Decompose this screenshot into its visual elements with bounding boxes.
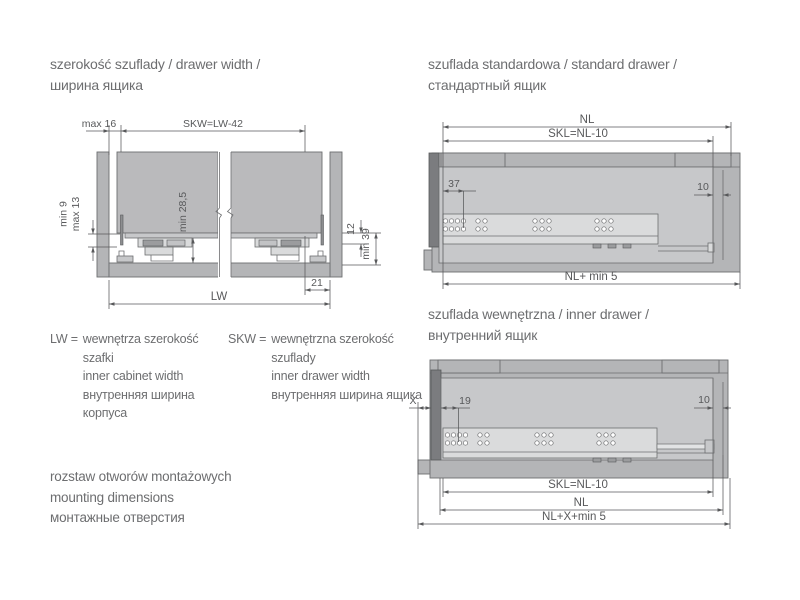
legend-lw-line: szafki <box>83 349 199 368</box>
dim-label-12: 12 <box>345 223 357 235</box>
drawer-width-diagram: max 16 SKW=LW-42 min 9 max 13 min 28,5 1… <box>55 108 400 320</box>
drawer-width-title: szerokość szuflady / drawer width / шири… <box>50 54 260 96</box>
top-notch-right <box>662 360 719 373</box>
inner-drawer-diagram: X 19 10 SKL=NL-10 NL NL+X+min 5 <box>408 352 773 537</box>
cabinet-bottom-section <box>418 460 431 474</box>
dim-label-max13: max 13 <box>70 197 82 232</box>
legend-skw-line: inner drawer width <box>271 367 422 386</box>
dim-label-nl-min5: NL+ min 5 <box>565 271 618 283</box>
dim-label-skl: SKL=NL-10 <box>548 479 608 491</box>
mounting-note-line2: mounting dimensions <box>50 488 231 509</box>
drawer-body-right <box>230 152 322 233</box>
dim-label-min39: min 39 <box>360 228 372 260</box>
dim-label-min285: min 28,5 <box>177 192 189 232</box>
dim-label-skw: SKW=LW-42 <box>183 118 243 130</box>
dim-label-max16: max 16 <box>82 118 117 130</box>
legend-lw-line: корпуса <box>83 404 199 423</box>
drawer-side-clip-right <box>321 215 324 245</box>
legend-skw-line: внутренняя ширина ящика <box>271 386 422 405</box>
slide-mechanism-left <box>117 238 192 262</box>
dim-label-37: 37 <box>448 178 460 190</box>
legend-lw-term: LW = <box>50 330 78 423</box>
break-gap <box>218 148 231 281</box>
technical-sheet: szerokość szuflady / drawer width / шири… <box>0 0 800 600</box>
standard-drawer-title: szuflada standardowa / standard drawer /… <box>428 54 677 96</box>
top-notch-right <box>675 153 731 167</box>
cabinet-front-edge <box>431 370 441 460</box>
dim-label-lw: LW <box>211 291 228 303</box>
mounting-note: rozstaw otworów montażowych mounting dim… <box>50 467 231 529</box>
legend-skw-term: SKW = <box>228 330 266 404</box>
cabinet-back-panel <box>429 153 439 247</box>
standard-drawer-title-line2: стандартный ящик <box>428 75 677 96</box>
dim-label-nl-x-min5: NL+X+min 5 <box>542 511 606 523</box>
standard-drawer-title-line1: szuflada standardowa / standard drawer / <box>428 54 677 75</box>
drawer-bottom-left <box>125 233 218 238</box>
legend-skw-lines: wewnętrzna szerokość szuflady inner draw… <box>271 330 422 404</box>
dim-label-19: 19 <box>459 395 471 407</box>
legend-lw-line: wewnętrza szerokość <box>83 330 199 349</box>
drawer-width-title-line2: ширина ящика <box>50 75 260 96</box>
legend-lw-lines: wewnętrza szerokość szafki inner cabinet… <box>83 330 199 423</box>
slide-mechanism-right <box>255 238 326 262</box>
legend-lw-line: внутренняя ширина <box>83 386 199 405</box>
inner-drawer-title-line2: внутренний ящик <box>428 325 649 346</box>
inner-drawer-title: szuflada wewnętrzna / inner drawer / вну… <box>428 304 649 346</box>
drawer-bottom-right <box>230 233 317 238</box>
drawer-width-title-line1: szerokość szuflady / drawer width / <box>50 54 260 75</box>
top-notch-left <box>441 153 505 167</box>
legend-skw-line: wewnętrzna szerokość <box>271 330 422 349</box>
inner-drawer-title-line1: szuflada wewnętrzna / inner drawer / <box>428 304 649 325</box>
cabinet-right-side-panel <box>330 152 342 277</box>
mounting-note-line3: монтажные отверстия <box>50 508 231 529</box>
dim-label-10: 10 <box>698 394 710 406</box>
drawer-side-clip-left <box>121 215 124 245</box>
legend-lw-line: inner cabinet width <box>83 367 199 386</box>
drawer-body-left <box>117 152 218 233</box>
dim-label-10: 10 <box>697 181 709 193</box>
dim-label-min9: min 9 <box>58 201 70 227</box>
legend-skw: SKW = wewnętrzna szerokość szuflady inne… <box>228 330 422 404</box>
legend-lw: LW = wewnętrza szerokość szafki inner ca… <box>50 330 199 423</box>
top-notch-left <box>438 360 500 373</box>
rail-tabs <box>593 458 631 462</box>
cabinet-left-side-panel <box>97 152 109 277</box>
legend-skw-line: szuflady <box>271 349 422 368</box>
rail-tabs <box>593 244 631 248</box>
dim-label-21: 21 <box>311 277 323 289</box>
dim-label-nl: NL <box>574 497 589 509</box>
dim-label-nl: NL <box>580 114 595 126</box>
standard-drawer-diagram: NL SKL=NL-10 37 10 NL+ min 5 <box>418 110 768 305</box>
dim-label-skl: SKL=NL-10 <box>548 128 608 140</box>
mounting-note-line1: rozstaw otworów montażowych <box>50 467 231 488</box>
